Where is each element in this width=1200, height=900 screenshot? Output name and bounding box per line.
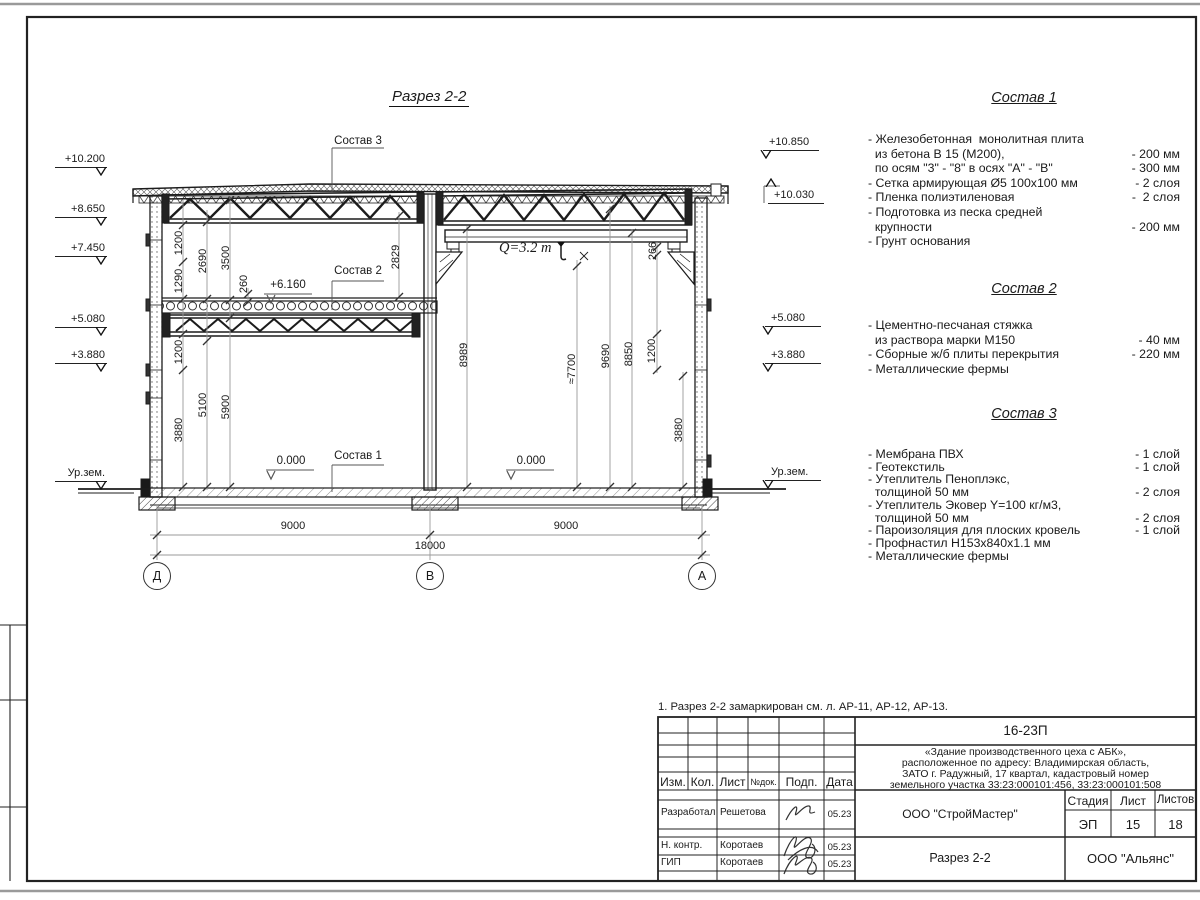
staff-name: Решетова <box>720 807 766 818</box>
layer-value: - 40 мм <box>1138 333 1180 348</box>
elevation-value: +8.650 <box>71 203 105 215</box>
elevation-mark: +7.450 <box>55 242 107 257</box>
layer-name: - Цементно-песчаная стяжка <box>868 318 1033 333</box>
layer-name: - Железобетонная монолитная плита <box>868 132 1084 147</box>
elevation-mark-icon <box>95 256 107 265</box>
dimension-label: 3500 <box>220 246 232 270</box>
crane-capacity-label: Q=3.2 т <box>499 240 551 257</box>
axis-bubble: Д <box>143 562 171 590</box>
composition-row: - Металлические фермы <box>868 362 1180 377</box>
col-kol: Кол. <box>688 774 717 790</box>
dimension-label: 1200 <box>646 339 658 363</box>
staff-role: Разработал <box>661 807 715 818</box>
dimension-label: 8850 <box>623 342 635 366</box>
dimension-label: 2829 <box>390 245 402 269</box>
composition-row: - Профнастил Н153х840х1.1 мм <box>868 537 1180 550</box>
layer-value: - 200 мм <box>1132 220 1180 235</box>
stage-label: Стадия <box>1065 794 1111 808</box>
composition-row: из раствора марки М150 - 40 мм <box>868 333 1180 348</box>
drawing-view-title: Разрез 2-2 <box>389 88 469 107</box>
composition-row: - Железобетонная монолитная плита <box>868 132 1180 147</box>
elevation-mark-icon <box>762 326 774 335</box>
dimension-label: 1290 <box>173 269 185 293</box>
layer-name: - Мембрана ПВХ <box>868 448 964 461</box>
dimension-label: 9690 <box>600 344 612 368</box>
elevation-mark-icon <box>762 480 774 489</box>
composition-1-block: Состав 1 - Железобетонная монолитная пли… <box>868 90 1180 249</box>
elevation-mark: Ур.зем. <box>765 466 821 481</box>
composition-callout: Состав 2 <box>334 265 382 277</box>
layer-name: из бетона В 15 (М200), <box>868 147 1005 162</box>
dimension-label: 260 <box>238 275 250 293</box>
col-izm: Изм. <box>658 774 688 790</box>
elevation-value: +5.080 <box>771 312 805 324</box>
composition-row: - Подготовка из песка средней <box>868 205 1180 220</box>
axis-bubble: А <box>688 562 716 590</box>
composition-row: толщиной 50 мм - 2 слоя <box>868 486 1180 499</box>
dimension-label: 9000 <box>281 520 305 532</box>
composition-2-block: Состав 2 - Цементно-песчаная стяжка из р… <box>868 281 1180 376</box>
elevation-mark-icon <box>95 167 107 176</box>
project-description-line: «Здание производственного цеха с АБК», <box>858 747 1193 758</box>
layer-name: по осям "3" - "8" в осях "А" - "В" <box>868 161 1053 176</box>
col-podp: Подп. <box>779 774 824 790</box>
layer-name: толщиной 50 мм <box>868 486 969 499</box>
composition-row: - Сетка армирующая Ø5 100х100 мм - 2 сло… <box>868 176 1180 191</box>
layer-name: - Металлические фермы <box>868 550 1009 563</box>
composition-2-title: Состав 2 <box>868 281 1180 297</box>
layer-name: - Сборные ж/б плиты перекрытия <box>868 347 1059 362</box>
composition-row: - Утеплитель Эковер Y=100 кг/м3, <box>868 499 1180 512</box>
layer-name: - Сетка армирующая Ø5 100х100 мм <box>868 176 1078 191</box>
elevation-value: +10.850 <box>769 136 809 148</box>
elevation-mark-icon <box>95 481 107 490</box>
staff-role: ГИП <box>661 857 681 868</box>
composition-3-rows: - Мембрана ПВХ - 1 слой - Геотекстиль - … <box>868 448 1180 562</box>
dimension-label: 1200 <box>173 231 185 255</box>
layer-value: - 2 слоя <box>1135 486 1180 499</box>
dimension-label: 8989 <box>458 343 470 367</box>
elevation-mark-icon <box>95 363 107 372</box>
staff-date: 05.23 <box>824 859 855 870</box>
layer-value: - 220 мм <box>1132 347 1180 362</box>
staff-name: Коротаев <box>720 857 763 868</box>
composition-1-rows: - Железобетонная монолитная плита из бет… <box>868 132 1180 249</box>
document-number: 16-23П <box>855 723 1196 738</box>
elevation-mark: +10.850 <box>763 136 819 151</box>
composition-row: - Мембрана ПВХ - 1 слой <box>868 448 1180 461</box>
layer-name: - Пленка полиэтиленовая <box>868 190 1014 205</box>
dimension-label: 5100 <box>197 393 209 417</box>
col-ndok: №док. <box>748 774 779 790</box>
layer-name: - Профнастил Н153х840х1.1 мм <box>868 537 1051 550</box>
layer-value: - 1 слой <box>1135 461 1180 474</box>
layer-value: - 2 слоя <box>1135 176 1180 191</box>
elevation-value: +10.200 <box>65 153 105 165</box>
composition-row: - Сборные ж/б плиты перекрытия - 220 мм <box>868 347 1180 362</box>
elevation-mark-icon <box>762 363 774 372</box>
elevation-mark-icon <box>95 327 107 336</box>
elevation-mark: +5.080 <box>55 313 107 328</box>
elevation-mark: +10.200 <box>55 153 107 168</box>
elevation-mark: Ур.зем. <box>55 467 107 482</box>
col-data: Дата <box>824 774 855 790</box>
layer-value: - 300 мм <box>1132 161 1180 176</box>
elevation-mark-icon <box>765 178 777 187</box>
layer-name: - Подготовка из песка средней <box>868 205 1042 220</box>
col-list: Лист <box>717 774 748 790</box>
layer-name: из раствора марки М150 <box>868 333 1015 348</box>
staff-role: Н. контр. <box>661 840 702 851</box>
layer-value: - 2 слоя <box>1132 190 1180 205</box>
staff-date: 05.23 <box>824 842 855 853</box>
contractor-organization: ООО "СтройМастер" <box>855 807 1065 821</box>
section-name: Разрез 2-2 <box>855 851 1065 865</box>
layer-name: - Металлические фермы <box>868 362 1009 377</box>
level-callout: 0.000 <box>277 455 306 467</box>
composition-row: крупности - 200 мм <box>868 220 1180 235</box>
composition-3-title: Состав 3 <box>868 406 1180 422</box>
project-description: «Здание производственного цеха с АБК»,ра… <box>858 747 1193 791</box>
client-company: ООО "Альянс" <box>1065 851 1196 866</box>
axis-bubble: В <box>416 562 444 590</box>
composition-2-rows: - Цементно-песчаная стяжка из раствора м… <box>868 318 1180 376</box>
dimension-label: 266 <box>647 242 659 260</box>
layer-name: крупности <box>868 220 932 235</box>
project-description-line: земельного участка 33:23:000101:456, 33:… <box>858 780 1193 791</box>
elevation-mark-icon <box>760 150 772 159</box>
sheet-number: 15 <box>1111 817 1155 832</box>
elevation-value: +3.880 <box>771 349 805 361</box>
composition-1-title: Состав 1 <box>868 90 1180 106</box>
layer-value: - 200 мм <box>1132 147 1180 162</box>
composition-row: - Грунт основания <box>868 234 1180 249</box>
elevation-value: Ур.зем. <box>68 467 105 479</box>
elevation-value: +5.080 <box>71 313 105 325</box>
elevation-value: +7.450 <box>71 242 105 254</box>
dimension-label: 3880 <box>173 418 185 442</box>
composition-row: - Цементно-песчаная стяжка <box>868 318 1180 333</box>
sheet-note: 1. Разрез 2-2 замаркирован см. л. АР-11,… <box>658 701 948 713</box>
signatures <box>784 806 818 874</box>
staff-date: 05.23 <box>824 809 855 820</box>
elevation-value: Ур.зем. <box>771 466 808 478</box>
dimension-label: 1200 <box>173 340 185 364</box>
elevation-mark: +8.650 <box>55 203 107 218</box>
composition-row: - Металлические фермы <box>868 550 1180 563</box>
stage-value: ЭП <box>1065 817 1111 832</box>
layer-value: - 1 слой <box>1135 524 1180 537</box>
layer-name: - Утеплитель Эковер Y=100 кг/м3, <box>868 499 1061 512</box>
composition-row: по осям "3" - "8" в осях "А" - "В" - 300… <box>868 161 1180 176</box>
sheet-label: Лист <box>1111 794 1155 808</box>
dimension-label: ≈7700 <box>566 354 578 385</box>
elevation-mark-icon <box>95 217 107 226</box>
staff-name: Коротаев <box>720 840 763 851</box>
composition-row: из бетона В 15 (М200), - 200 мм <box>868 147 1180 162</box>
dimension-label: 5900 <box>220 395 232 419</box>
level-callout: 0.000 <box>517 455 546 467</box>
sheets-label: Листов <box>1155 794 1196 806</box>
composition-row: - Пленка полиэтиленовая - 2 слоя <box>868 190 1180 205</box>
dimension-label: 3880 <box>673 418 685 442</box>
composition-3-block: Состав 3 - Мембрана ПВХ - 1 слой - Геоте… <box>868 406 1180 562</box>
layer-value: - 1 слой <box>1135 448 1180 461</box>
elevation-value: +10.030 <box>774 189 814 201</box>
project-description-line: расположенное по адресу: Владимирская об… <box>858 758 1193 769</box>
elevation-value: +3.880 <box>71 349 105 361</box>
layer-name: - Грунт основания <box>868 234 970 249</box>
composition-callout: Состав 3 <box>334 135 382 147</box>
sheets-total: 18 <box>1155 817 1196 832</box>
level-callout: +6.160 <box>270 279 306 291</box>
project-description-line: ЗАТО г. Радужный, 17 квартал, кадастровы… <box>858 769 1193 780</box>
dimension-label: 9000 <box>554 520 578 532</box>
elevation-mark: +3.880 <box>765 349 821 364</box>
dimension-label: 18000 <box>415 540 446 552</box>
elevation-mark: +10.030 <box>768 189 824 204</box>
dimension-label: 2690 <box>197 249 209 273</box>
elevation-mark: +3.880 <box>55 349 107 364</box>
composition-callout: Состав 1 <box>334 450 382 462</box>
elevation-mark: +5.080 <box>765 312 821 327</box>
